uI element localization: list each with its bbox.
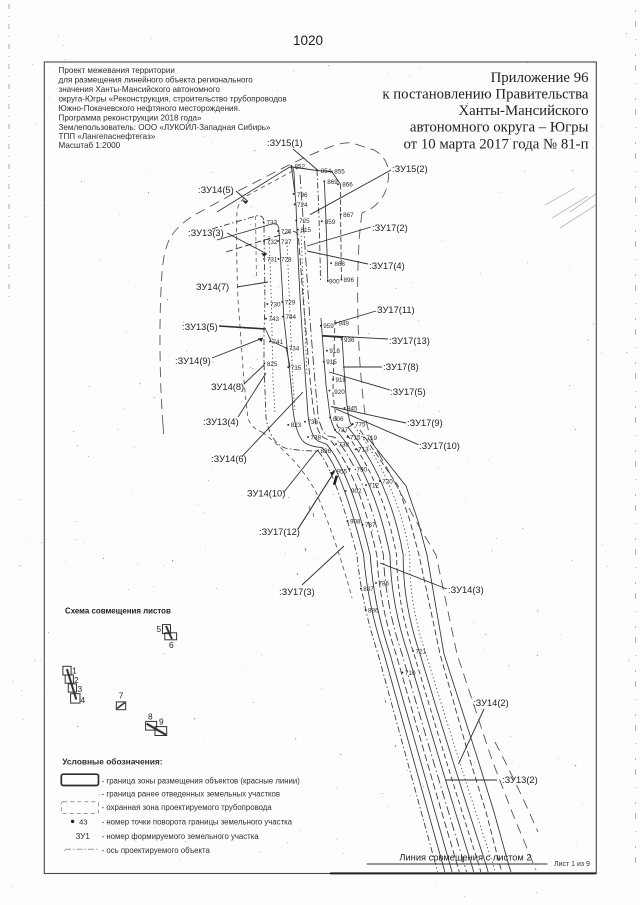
svg-text:868: 868 xyxy=(334,261,345,268)
svg-text:- охранная зона проектируемого: - охранная зона проектируемого трубопров… xyxy=(102,803,273,812)
svg-text::ЗУ17(2): :ЗУ17(2) xyxy=(372,223,408,233)
svg-text:710: 710 xyxy=(405,670,416,677)
svg-text::ЗУ17(12): :ЗУ17(12) xyxy=(259,527,300,537)
svg-text::ЗУ17(9): :ЗУ17(9) xyxy=(407,418,443,428)
svg-text:908: 908 xyxy=(350,519,361,526)
svg-text:8: 8 xyxy=(148,712,153,722)
svg-text:866: 866 xyxy=(342,182,353,189)
svg-text:915: 915 xyxy=(326,359,337,366)
svg-text:733: 733 xyxy=(267,220,278,227)
svg-text::ЗУ14(5): :ЗУ14(5) xyxy=(198,185,234,195)
svg-text:726: 726 xyxy=(281,228,292,235)
svg-text:ЗУ14(8): ЗУ14(8) xyxy=(211,382,244,392)
svg-text:738: 738 xyxy=(311,435,322,442)
svg-text:919: 919 xyxy=(336,377,347,384)
svg-text::ЗУ14(3): :ЗУ14(3) xyxy=(448,585,484,595)
svg-text:852: 852 xyxy=(295,164,306,171)
svg-text:- номер точки поворота границы: - номер точки поворота границы земельног… xyxy=(102,818,293,827)
svg-text:Ханты-Мансийского: Ханты-Мансийского xyxy=(458,103,588,119)
svg-text:744: 744 xyxy=(286,314,297,321)
svg-text:1: 1 xyxy=(72,666,77,676)
svg-text:955: 955 xyxy=(337,469,348,476)
svg-text::ЗУ17(5): :ЗУ17(5) xyxy=(390,387,426,397)
svg-text:949: 949 xyxy=(338,321,349,328)
svg-text:887: 887 xyxy=(363,586,374,593)
svg-text:727: 727 xyxy=(281,239,292,246)
svg-text:900: 900 xyxy=(329,279,340,286)
svg-text:738: 738 xyxy=(339,442,350,449)
svg-text:936: 936 xyxy=(344,337,355,344)
svg-text:Условные обозначения:: Условные обозначения: xyxy=(62,757,162,767)
svg-text:Программа реконструкции 2018 г: Программа реконструкции 2018 года» xyxy=(59,114,203,123)
svg-text:6: 6 xyxy=(169,640,174,650)
svg-text::ЗУ17(4): :ЗУ17(4) xyxy=(369,261,405,271)
svg-text:для размещения линейного объек: для размещения линейного объекта региона… xyxy=(59,76,254,85)
svg-text:автономного округа – Югры: автономного округа – Югры xyxy=(410,120,589,136)
svg-text::ЗУ13(4): :ЗУ13(4) xyxy=(203,417,239,427)
svg-text:732: 732 xyxy=(267,239,278,246)
svg-text:731: 731 xyxy=(267,257,278,264)
svg-text::ЗУ15(2): :ЗУ15(2) xyxy=(392,164,428,174)
svg-text:734: 734 xyxy=(289,346,300,353)
svg-text::ЗУ17(3): :ЗУ17(3) xyxy=(279,587,315,597)
svg-text:735: 735 xyxy=(291,365,302,372)
svg-text:Приложение 96: Приложение 96 xyxy=(491,70,589,86)
svg-text:786: 786 xyxy=(379,581,390,588)
svg-text:869: 869 xyxy=(327,179,338,186)
svg-text:728: 728 xyxy=(281,257,292,264)
svg-text:867: 867 xyxy=(343,212,354,219)
svg-text:725: 725 xyxy=(299,218,310,225)
svg-text:Проект межевания территории: Проект межевания территории xyxy=(59,66,175,75)
svg-text:823: 823 xyxy=(291,422,302,429)
svg-text::ЗУ14(2): :ЗУ14(2) xyxy=(473,698,509,708)
svg-text:886: 886 xyxy=(368,608,379,615)
svg-text:1020: 1020 xyxy=(293,33,323,48)
svg-text:729: 729 xyxy=(285,300,296,307)
svg-text:ТПП «Лангепаснефтегаз»: ТПП «Лангепаснефтегаз» xyxy=(59,132,156,141)
svg-text:4: 4 xyxy=(81,695,86,705)
svg-text:713: 713 xyxy=(358,447,369,454)
svg-text:ЗУ14(10): ЗУ14(10) xyxy=(247,489,285,499)
svg-text:902: 902 xyxy=(351,488,362,495)
svg-text:Южно-Покачевского нефтяного ме: Южно-Покачевского нефтяного месторождени… xyxy=(59,104,241,113)
svg-text:43: 43 xyxy=(79,818,87,827)
svg-text:741: 741 xyxy=(273,339,284,346)
svg-text::ЗУ14(9): :ЗУ14(9) xyxy=(175,356,211,366)
svg-text:855: 855 xyxy=(334,169,345,176)
svg-text:743: 743 xyxy=(269,316,280,323)
svg-text:ЗУ17(11): ЗУ17(11) xyxy=(377,305,415,315)
svg-text:Землепользователь: ООО «ЛУКОЙЛ: Землепользователь: ООО «ЛУКОЙЛ-Западная … xyxy=(59,123,271,132)
svg-text::ЗУ17(8): :ЗУ17(8) xyxy=(383,362,419,372)
svg-text:ЗУ1: ЗУ1 xyxy=(76,832,91,841)
svg-text:- ось проектируемого объекта: - ось проектируемого объекта xyxy=(102,846,211,855)
svg-text:724: 724 xyxy=(297,202,308,209)
svg-text:от 10 марта 2017 года № 81-п: от 10 марта 2017 года № 81-п xyxy=(403,137,588,153)
svg-text:720: 720 xyxy=(382,479,393,486)
svg-text:815: 815 xyxy=(301,227,312,234)
svg-text:Масштаб 1:2000: Масштаб 1:2000 xyxy=(59,141,121,150)
svg-text:5: 5 xyxy=(157,624,162,634)
svg-text::ЗУ17(13): :ЗУ17(13) xyxy=(389,336,430,346)
svg-text::ЗУ13(2): :ЗУ13(2) xyxy=(502,775,538,785)
svg-text:значения Ханты-Мансийского авт: значения Ханты-Мансийского автономного xyxy=(59,85,221,94)
svg-text:854: 854 xyxy=(321,168,332,175)
svg-text:825: 825 xyxy=(267,361,278,368)
svg-text::ЗУ14(6): :ЗУ14(6) xyxy=(211,454,247,464)
svg-text:796: 796 xyxy=(297,192,308,199)
svg-text:836: 836 xyxy=(321,448,332,455)
svg-text:9: 9 xyxy=(159,717,164,727)
svg-text:- граница зоны размещения объе: - граница зоны размещения объектов (крас… xyxy=(102,777,301,786)
svg-text:736: 736 xyxy=(308,419,319,426)
svg-text:- номер формируемого земельног: - номер формируемого земельного участка xyxy=(102,832,260,841)
svg-text::ЗУ17(10): :ЗУ17(10) xyxy=(419,441,460,451)
svg-text:737: 737 xyxy=(338,427,349,434)
svg-text:715: 715 xyxy=(350,435,361,442)
svg-text:787: 787 xyxy=(365,522,376,529)
svg-text:712: 712 xyxy=(369,483,380,490)
svg-text:округа-Югры «Реконструкция, ст: округа-Югры «Реконструкция, строительств… xyxy=(59,95,287,104)
svg-text:719: 719 xyxy=(367,435,378,442)
svg-text::ЗУ13(5): :ЗУ13(5) xyxy=(182,322,218,332)
svg-text:Линия совмещения с листом 2: Линия совмещения с листом 2 xyxy=(399,853,531,863)
svg-text:790: 790 xyxy=(357,466,368,473)
svg-text:920: 920 xyxy=(334,389,345,396)
svg-text:730: 730 xyxy=(270,302,281,309)
svg-text:959: 959 xyxy=(323,323,334,330)
svg-text:859: 859 xyxy=(325,219,336,226)
svg-text::ЗУ15(1): :ЗУ15(1) xyxy=(267,138,303,148)
svg-text:918: 918 xyxy=(329,348,340,355)
svg-text:945: 945 xyxy=(347,406,358,413)
svg-text:806: 806 xyxy=(333,416,344,423)
svg-text:896: 896 xyxy=(344,277,355,284)
svg-text:721: 721 xyxy=(416,649,427,656)
svg-text:775: 775 xyxy=(355,422,366,429)
svg-text:7: 7 xyxy=(119,691,124,701)
svg-text:к постановлению Правительства: к постановлению Правительства xyxy=(382,87,589,103)
svg-text:Лист 1 из 9: Лист 1 из 9 xyxy=(554,861,590,868)
svg-text:Схема совмещения листов: Схема совмещения листов xyxy=(65,607,171,616)
svg-text:ЗУ14(7): ЗУ14(7) xyxy=(196,282,229,292)
svg-text:3: 3 xyxy=(78,684,83,694)
svg-text:- граница ранее отведенных зем: - граница ранее отведенных земельных уча… xyxy=(102,790,280,799)
svg-text::ЗУ13(3): :ЗУ13(3) xyxy=(188,228,224,238)
